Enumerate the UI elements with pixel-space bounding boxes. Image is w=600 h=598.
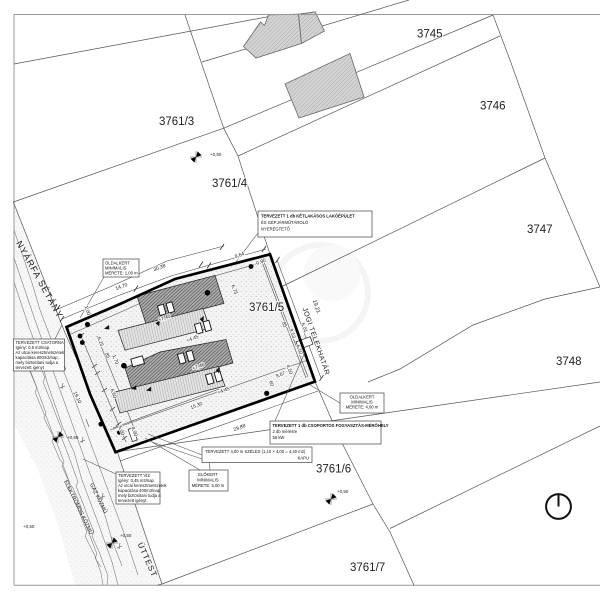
svg-text:56 kW: 56 kW [273, 435, 285, 440]
svg-text:MINIMALIS: MINIMALIS [197, 478, 219, 483]
svg-text:tervezett igényt: tervezett igényt [118, 498, 147, 503]
svg-text:3761/5: 3761/5 [249, 302, 284, 314]
svg-text:+0,50: +0,50 [23, 524, 35, 529]
svg-text:2 db mérésre: 2 db mérésre [273, 429, 298, 434]
svg-text:KAPU: KAPU [298, 456, 309, 461]
svg-text:3748: 3748 [556, 356, 582, 368]
svg-text:+0,50: +0,50 [120, 533, 132, 538]
svg-text:ÉS GÉPJÁRMŰTÁROLÓ: ÉS GÉPJÁRMŰTÁROLÓ [261, 220, 309, 225]
svg-text:NYEREGTETŐ: NYEREGTETŐ [261, 227, 291, 232]
svg-text:TERVEZETT 1 db KÉTLAKÁSOS LAKÓ: TERVEZETT 1 db KÉTLAKÁSOS LAKÓÉPÜLET [261, 214, 355, 219]
svg-text:3761/3: 3761/3 [159, 116, 194, 128]
svg-text:tervezett igényt: tervezett igényt [16, 365, 45, 370]
svg-text:+0,50: +0,50 [337, 489, 349, 494]
svg-text:MÉRETE: 5,00 m: MÉRETE: 5,00 m [192, 483, 225, 488]
svg-text:MÉRETE: 1,00 m: MÉRETE: 1,00 m [105, 271, 138, 276]
svg-text:MÉRETE: 4,00 m: MÉRETE: 4,00 m [346, 405, 379, 410]
svg-text:ELŐKERT: ELŐKERT [198, 472, 218, 477]
svg-text:3761/4: 3761/4 [212, 178, 248, 190]
svg-text:3746: 3746 [480, 101, 506, 113]
svg-text:TERVEZETT 4,00 m SZÉLES (1,10: TERVEZETT 4,00 m SZÉLES (1,10 × 4,00 = 4… [205, 449, 306, 454]
svg-text:3747: 3747 [527, 224, 553, 236]
svg-text:3761/6: 3761/6 [316, 464, 351, 476]
svg-text:+0,50: +0,50 [67, 435, 79, 440]
svg-text:+0,50: +0,50 [210, 152, 222, 157]
svg-text:TERVEZETT 1 db CSOPORTOS FOGYA: TERVEZETT 1 db CSOPORTOS FOGYASZTÁS-MÉRŐ… [273, 423, 389, 428]
svg-text:3745: 3745 [417, 29, 443, 41]
svg-text:3761/7: 3761/7 [350, 562, 385, 574]
